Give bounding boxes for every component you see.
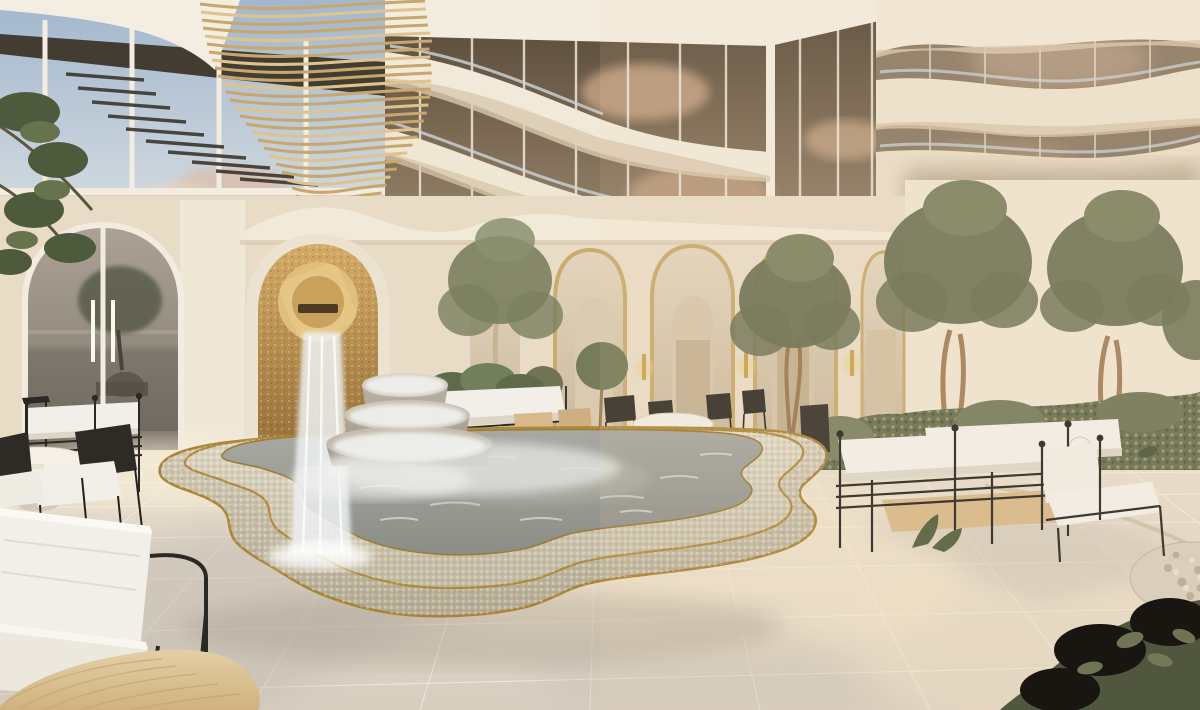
courtyard-render <box>0 0 1200 710</box>
splash <box>268 542 372 570</box>
render-canvas <box>0 0 1200 710</box>
spout-slot <box>298 304 338 313</box>
pilaster <box>180 200 245 455</box>
warm-haze <box>600 0 1200 710</box>
reflected-tree <box>78 266 162 334</box>
